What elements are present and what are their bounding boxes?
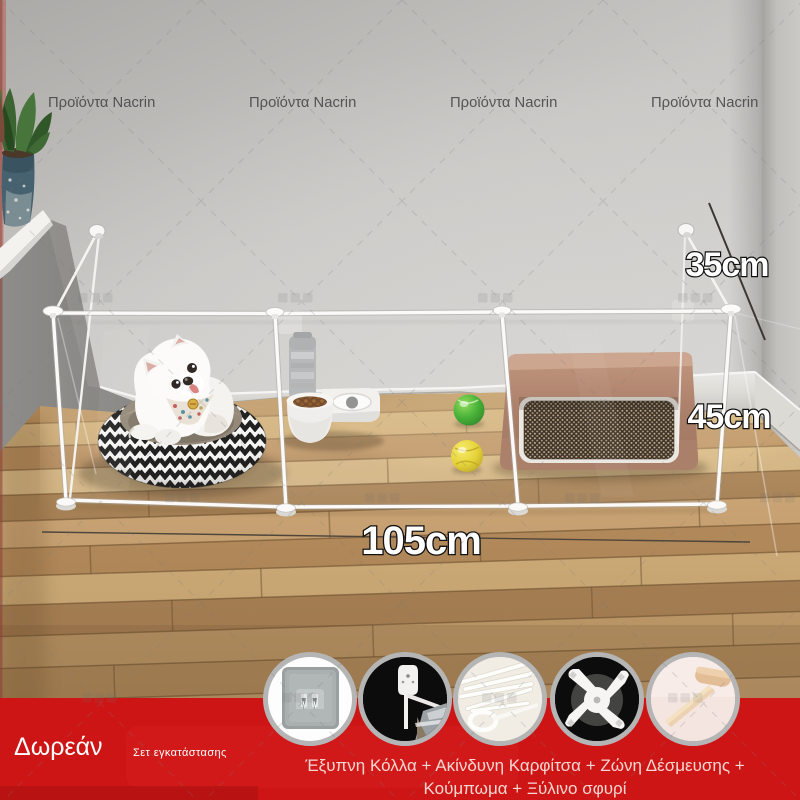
svg-text:Προϊόντα Nacrin: Προϊόντα Nacrin — [249, 95, 356, 111]
svg-text:Προϊόντα Nacrin: Προϊόντα Nacrin — [651, 95, 758, 111]
svg-text:Προϊόντα Nacrin: Προϊόντα Nacrin — [450, 95, 557, 111]
svg-text:Προϊόντα Nacrin: Προϊόντα Nacrin — [48, 95, 155, 111]
